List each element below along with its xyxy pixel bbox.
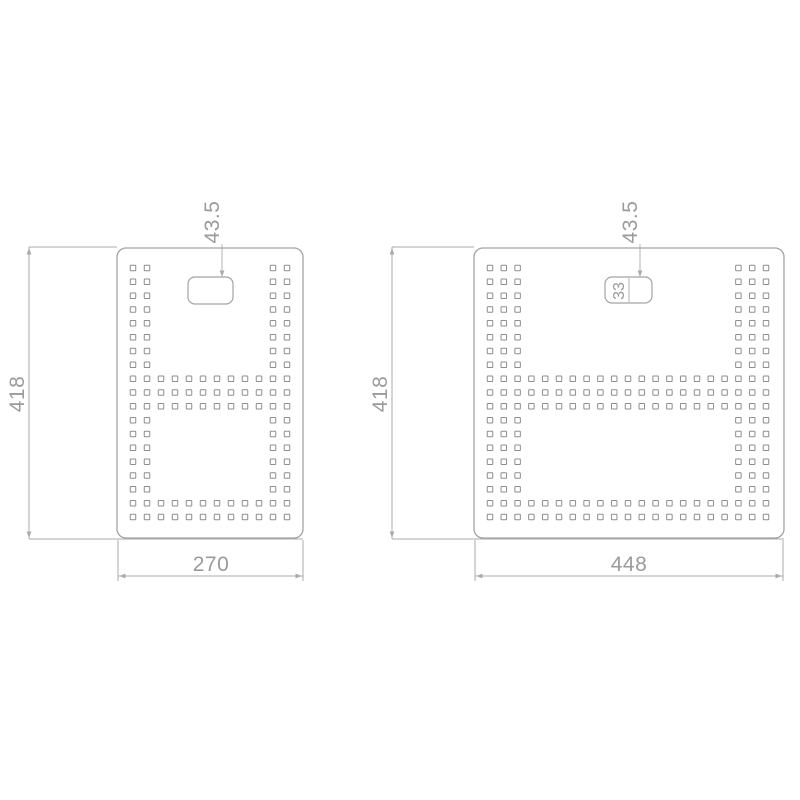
panel-hole	[501, 348, 507, 354]
panel-hole	[284, 265, 290, 271]
panel-hole	[653, 500, 659, 506]
panel-hole	[130, 459, 136, 465]
left-height-arrow-top	[27, 248, 32, 255]
panel-hole	[736, 487, 742, 493]
panel-hole	[708, 376, 714, 382]
panel-hole	[130, 417, 136, 423]
panel-hole	[144, 321, 150, 327]
right-slot-offset-label: 43.5	[619, 201, 642, 244]
panel-hole	[722, 500, 728, 506]
panel-hole	[736, 431, 742, 437]
panel-hole	[487, 500, 493, 506]
panel-hole	[611, 500, 617, 506]
panel-hole	[598, 390, 604, 396]
panel-hole	[680, 376, 686, 382]
panel-hole	[130, 431, 136, 437]
panel-hole	[242, 376, 248, 382]
panel-hole	[172, 404, 178, 410]
panel-hole	[570, 376, 576, 382]
panel-hole	[487, 473, 493, 479]
panel-hole	[515, 362, 521, 368]
panel-hole	[284, 487, 290, 493]
panel-hole	[515, 390, 521, 396]
panel-hole	[515, 431, 521, 437]
panel-hole	[598, 376, 604, 382]
panel-hole	[200, 500, 206, 506]
panel-hole	[515, 473, 521, 479]
panel-hole	[487, 431, 493, 437]
panel-hole	[256, 500, 262, 506]
panel-hole	[722, 514, 728, 520]
panel-hole	[501, 293, 507, 299]
panel-hole	[529, 500, 535, 506]
panel-hole	[130, 293, 136, 299]
panel-hole	[515, 293, 521, 299]
panel-hole	[749, 362, 755, 368]
panel-hole	[270, 487, 276, 493]
panel-hole	[639, 500, 645, 506]
panel-hole	[501, 431, 507, 437]
panel-hole	[763, 376, 769, 382]
panel-hole	[749, 307, 755, 313]
panel-hole	[722, 390, 728, 396]
panel-hole	[749, 514, 755, 520]
panel-hole	[556, 500, 562, 506]
panel-hole	[270, 321, 276, 327]
panel-hole	[749, 459, 755, 465]
panel-hole	[694, 514, 700, 520]
panel-hole	[172, 500, 178, 506]
panel-hole	[144, 293, 150, 299]
panel-hole	[214, 404, 220, 410]
panel-hole	[228, 390, 234, 396]
panel-hole	[749, 431, 755, 437]
right-width-arrow-left	[476, 574, 483, 579]
panel-hole	[708, 500, 714, 506]
panel-hole	[487, 390, 493, 396]
panel-hole	[130, 500, 136, 506]
panel-hole	[270, 334, 276, 340]
panel-hole	[144, 404, 150, 410]
panel-hole	[242, 500, 248, 506]
panel-hole	[144, 459, 150, 465]
panel-hole	[570, 500, 576, 506]
panel-hole	[270, 445, 276, 451]
panel-hole	[598, 514, 604, 520]
panel-hole	[763, 390, 769, 396]
panel-hole	[144, 376, 150, 382]
panel-hole	[172, 376, 178, 382]
panel-hole	[736, 459, 742, 465]
panel-hole	[501, 417, 507, 423]
panel-hole	[214, 514, 220, 520]
panel-hole	[611, 390, 617, 396]
panel-hole	[529, 404, 535, 410]
left-height-arrow-bottom	[27, 532, 32, 539]
panel-hole	[130, 279, 136, 285]
panel-hole	[749, 487, 755, 493]
panel-hole	[270, 431, 276, 437]
panel-hole	[270, 362, 276, 368]
panel-hole	[611, 376, 617, 382]
left-height-label: 418	[6, 376, 29, 413]
panel-hole	[611, 514, 617, 520]
panel-hole	[270, 459, 276, 465]
panel-hole	[144, 500, 150, 506]
panel-hole	[763, 473, 769, 479]
panel-hole	[515, 376, 521, 382]
panel-hole	[130, 514, 136, 520]
right-height-label: 418	[369, 376, 392, 413]
panel-hole	[130, 390, 136, 396]
panel-hole	[200, 404, 206, 410]
panel-hole	[515, 514, 521, 520]
panel-hole	[708, 390, 714, 396]
panel-hole	[722, 404, 728, 410]
panel-hole	[763, 334, 769, 340]
panel-hole	[515, 417, 521, 423]
panel-hole	[708, 514, 714, 520]
panel-hole	[763, 265, 769, 271]
panel-hole	[487, 445, 493, 451]
panel-hole	[130, 265, 136, 271]
panel-hole	[130, 334, 136, 340]
panel-hole	[722, 376, 728, 382]
panel-hole	[749, 500, 755, 506]
panel-hole	[284, 459, 290, 465]
panel-hole	[515, 348, 521, 354]
panel-hole	[667, 514, 673, 520]
panel-hole	[667, 500, 673, 506]
panel-hole	[749, 445, 755, 451]
panel-hole	[144, 279, 150, 285]
panel-hole	[158, 404, 164, 410]
panel-hole	[501, 445, 507, 451]
panel-hole	[680, 500, 686, 506]
panel-hole	[284, 445, 290, 451]
panel-hole	[501, 404, 507, 410]
panel-hole	[639, 404, 645, 410]
panel-hole	[130, 487, 136, 493]
panel-hole	[270, 307, 276, 313]
panel-hole	[242, 404, 248, 410]
panel-hole	[270, 293, 276, 299]
panel-hole	[749, 376, 755, 382]
panel-hole	[501, 307, 507, 313]
panel-hole	[284, 321, 290, 327]
panel-hole	[639, 376, 645, 382]
panel-hole	[625, 376, 631, 382]
view-panel-270: 418 43.5 270	[6, 201, 303, 581]
panel-hole	[542, 500, 548, 506]
panel-hole	[270, 500, 276, 506]
panel-hole	[284, 362, 290, 368]
panel-hole	[144, 514, 150, 520]
panel-hole	[284, 514, 290, 520]
panel-hole	[501, 279, 507, 285]
panel-hole	[284, 473, 290, 479]
panel-hole	[763, 279, 769, 285]
panel-hole	[501, 514, 507, 520]
panel-hole	[242, 514, 248, 520]
panel-hole	[186, 390, 192, 396]
panel-hole	[256, 514, 262, 520]
panel-hole	[130, 473, 136, 479]
panel-hole	[144, 417, 150, 423]
panel-hole	[172, 390, 178, 396]
panel-hole	[653, 376, 659, 382]
panel-hole	[736, 293, 742, 299]
panel-hole	[763, 431, 769, 437]
panel-hole	[487, 307, 493, 313]
panel-hole	[749, 293, 755, 299]
panel-hole	[625, 500, 631, 506]
panel-hole	[214, 500, 220, 506]
left-width-arrow-left	[119, 574, 126, 579]
panel-hole	[284, 279, 290, 285]
panel-hole	[653, 514, 659, 520]
panel-hole	[736, 445, 742, 451]
panel-hole	[501, 459, 507, 465]
panel-hole	[256, 390, 262, 396]
panel-hole	[284, 376, 290, 382]
panel-hole	[556, 514, 562, 520]
panel-hole	[584, 514, 590, 520]
panel-hole	[694, 500, 700, 506]
panel-hole	[172, 514, 178, 520]
panel-hole	[763, 500, 769, 506]
panel-hole	[186, 500, 192, 506]
panel-hole	[144, 431, 150, 437]
panel-hole	[611, 404, 617, 410]
panel-hole	[186, 404, 192, 410]
panel-hole	[270, 265, 276, 271]
panel-hole	[667, 390, 673, 396]
panel-hole	[186, 376, 192, 382]
panel-hole	[515, 500, 521, 506]
panel-hole	[736, 265, 742, 271]
panel-hole	[515, 265, 521, 271]
panel-hole	[667, 404, 673, 410]
panel-hole	[487, 334, 493, 340]
panel-hole	[736, 321, 742, 327]
panel-hole	[270, 404, 276, 410]
panel-hole	[487, 487, 493, 493]
panel-hole	[542, 404, 548, 410]
panel-hole	[501, 334, 507, 340]
panel-hole	[158, 500, 164, 506]
panel-hole	[130, 445, 136, 451]
panel-hole	[144, 334, 150, 340]
panel-hole	[736, 362, 742, 368]
panel-hole	[270, 473, 276, 479]
panel-hole	[598, 404, 604, 410]
panel-hole	[284, 431, 290, 437]
panel-hole	[501, 376, 507, 382]
right-slot-height-label: 33	[611, 282, 628, 300]
panel-hole	[515, 307, 521, 313]
technical-drawing: 418 43.5 270	[0, 0, 800, 800]
panel-hole	[763, 362, 769, 368]
panel-hole	[749, 321, 755, 327]
panel-hole	[144, 487, 150, 493]
panel-hole	[200, 390, 206, 396]
panel-hole	[639, 514, 645, 520]
panel-hole	[749, 279, 755, 285]
panel-hole	[158, 514, 164, 520]
panel-hole	[487, 348, 493, 354]
panel-hole	[763, 348, 769, 354]
panel-hole	[763, 321, 769, 327]
panel-hole	[736, 404, 742, 410]
right-width-arrow-right	[776, 574, 783, 579]
panel-hole	[501, 321, 507, 327]
panel-hole	[625, 514, 631, 520]
view-panel-448: 418 33 43.5 448	[369, 201, 784, 581]
panel-hole	[763, 514, 769, 520]
panel-hole	[487, 417, 493, 423]
panel-hole	[270, 279, 276, 285]
panel-hole	[487, 514, 493, 520]
panel-hole	[144, 362, 150, 368]
panel-hole	[639, 390, 645, 396]
panel-hole	[256, 404, 262, 410]
drawing-canvas: 418 43.5 270	[0, 0, 800, 800]
panel-hole	[228, 500, 234, 506]
panel-hole	[256, 376, 262, 382]
left-panel-slot	[188, 277, 233, 304]
panel-hole	[736, 390, 742, 396]
right-height-arrow-top	[390, 248, 395, 255]
panel-hole	[158, 376, 164, 382]
panel-hole	[130, 348, 136, 354]
panel-hole	[158, 390, 164, 396]
panel-hole	[242, 390, 248, 396]
panel-hole	[749, 348, 755, 354]
panel-hole	[680, 390, 686, 396]
panel-hole	[584, 390, 590, 396]
panel-hole	[270, 348, 276, 354]
panel-hole	[515, 334, 521, 340]
panel-hole	[214, 390, 220, 396]
panel-hole	[284, 404, 290, 410]
panel-hole	[736, 307, 742, 313]
panel-hole	[487, 459, 493, 465]
panel-hole	[584, 404, 590, 410]
panel-hole	[556, 404, 562, 410]
panel-hole	[284, 348, 290, 354]
panel-hole	[501, 500, 507, 506]
right-width-label: 448	[611, 553, 648, 576]
panel-hole	[228, 404, 234, 410]
panel-hole	[749, 473, 755, 479]
panel-hole	[584, 376, 590, 382]
panel-hole	[200, 514, 206, 520]
panel-hole	[694, 376, 700, 382]
panel-hole	[736, 514, 742, 520]
panel-hole	[529, 376, 535, 382]
panel-hole	[487, 404, 493, 410]
panel-hole	[228, 376, 234, 382]
panel-hole	[501, 473, 507, 479]
panel-hole	[763, 293, 769, 299]
panel-hole	[749, 265, 755, 271]
panel-hole	[515, 404, 521, 410]
panel-hole	[186, 514, 192, 520]
panel-hole	[284, 293, 290, 299]
panel-hole	[270, 376, 276, 382]
right-height-arrow-bottom	[390, 532, 395, 539]
panel-hole	[667, 376, 673, 382]
panel-hole	[694, 404, 700, 410]
panel-hole	[749, 404, 755, 410]
panel-hole	[736, 376, 742, 382]
panel-hole	[763, 417, 769, 423]
panel-hole	[598, 500, 604, 506]
panel-hole	[284, 417, 290, 423]
panel-hole	[130, 307, 136, 313]
panel-hole	[130, 376, 136, 382]
panel-hole	[736, 334, 742, 340]
panel-hole	[763, 445, 769, 451]
panel-hole	[144, 307, 150, 313]
panel-hole	[694, 390, 700, 396]
panel-hole	[736, 348, 742, 354]
panel-hole	[529, 514, 535, 520]
left-width-arrow-right	[296, 574, 303, 579]
panel-hole	[270, 390, 276, 396]
panel-hole	[200, 376, 206, 382]
panel-hole	[570, 390, 576, 396]
panel-hole	[284, 390, 290, 396]
panel-hole	[625, 404, 631, 410]
panel-hole	[570, 514, 576, 520]
panel-hole	[749, 417, 755, 423]
panel-hole	[144, 348, 150, 354]
panel-hole	[515, 321, 521, 327]
panel-hole	[487, 279, 493, 285]
panel-hole	[542, 514, 548, 520]
panel-hole	[487, 362, 493, 368]
panel-hole	[680, 514, 686, 520]
panel-hole	[214, 376, 220, 382]
panel-hole	[749, 390, 755, 396]
panel-hole	[736, 279, 742, 285]
panel-hole	[653, 390, 659, 396]
panel-hole	[625, 390, 631, 396]
panel-hole	[736, 500, 742, 506]
panel-hole	[763, 404, 769, 410]
panel-hole	[763, 459, 769, 465]
left-width-label: 270	[193, 553, 230, 576]
panel-hole	[284, 307, 290, 313]
panel-hole	[736, 417, 742, 423]
panel-hole	[270, 514, 276, 520]
panel-hole	[542, 390, 548, 396]
panel-hole	[487, 293, 493, 299]
panel-hole	[487, 265, 493, 271]
panel-hole	[542, 376, 548, 382]
panel-hole	[501, 390, 507, 396]
panel-hole	[515, 487, 521, 493]
panel-hole	[515, 459, 521, 465]
panel-hole	[763, 307, 769, 313]
panel-hole	[680, 404, 686, 410]
panel-hole	[144, 473, 150, 479]
panel-hole	[144, 265, 150, 271]
panel-hole	[284, 500, 290, 506]
panel-hole	[501, 487, 507, 493]
